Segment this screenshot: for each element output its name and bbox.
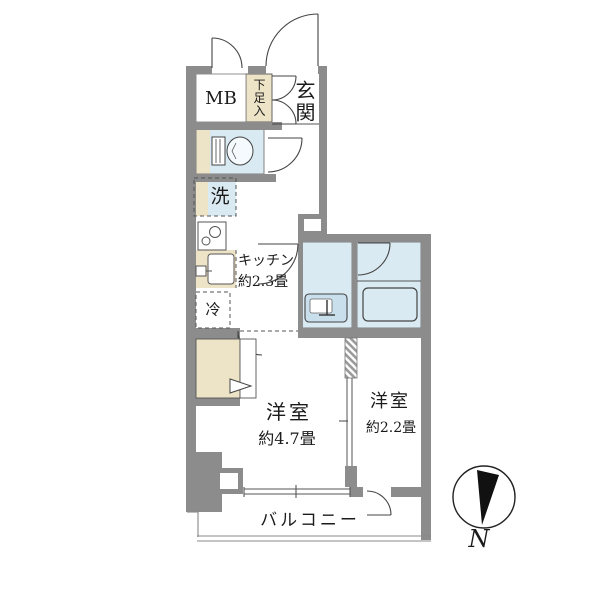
- shoe-cabinet-label: 下足入: [253, 79, 265, 118]
- sub-room-size-label: 約2.2畳: [366, 421, 416, 435]
- kitchen-label: キッチン: [238, 254, 294, 268]
- entrance-door: [266, 14, 318, 66]
- closet: [196, 339, 256, 398]
- toilet-icon: [212, 137, 253, 165]
- washbasin-icon: [305, 294, 347, 322]
- main-room-label: 洋室: [266, 402, 312, 422]
- toilet-door: [268, 138, 302, 172]
- compass-north-icon: [453, 466, 515, 528]
- fridge-label: 冷: [205, 303, 220, 318]
- sub-room-label: 洋室: [370, 393, 410, 411]
- north-label: N: [469, 527, 490, 551]
- stove-icon: [198, 222, 226, 250]
- room-partition-sliding-door: [339, 338, 357, 466]
- washer-label: 洗: [210, 188, 229, 207]
- kitchen-size-label: 約2.3畳: [238, 275, 288, 289]
- entrance-label: 玄関: [294, 80, 314, 124]
- balcony-door: [367, 491, 391, 515]
- meter-box-door: [212, 38, 242, 68]
- balcony-label: バルコニー: [260, 513, 360, 530]
- floorplan-page: MB 下足入 玄関 洗 キッチン 約2.3畳 冷 洋室 約4.7畳 洋室 約2.…: [0, 0, 600, 600]
- meter-box-label: MB: [205, 90, 237, 108]
- main-room-size-label: 約4.7畳: [258, 431, 315, 447]
